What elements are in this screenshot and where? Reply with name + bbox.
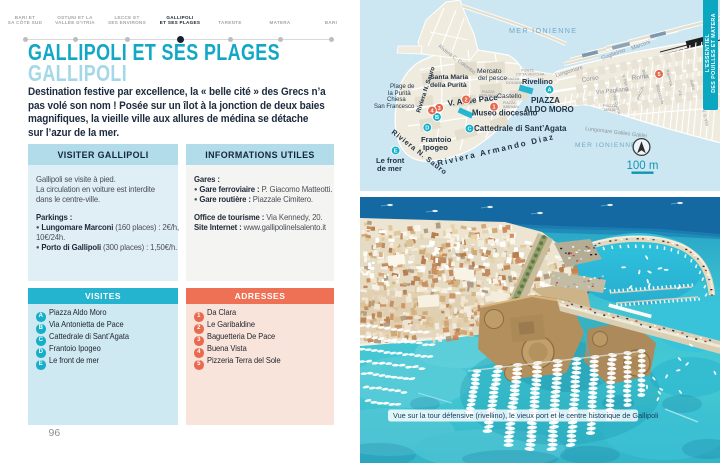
- svg-text:D: D: [425, 126, 429, 132]
- svg-text:REPUBBLICA: REPUBBLICA: [479, 94, 502, 98]
- svg-text:E: E: [393, 149, 397, 155]
- svg-text:Plage de: Plage de: [390, 83, 415, 90]
- svg-text:de mer: de mer: [377, 164, 402, 173]
- svg-text:del pesce: del pesce: [478, 75, 507, 82]
- svg-text:MER IONIENNE: MER IONIENNE: [575, 142, 637, 149]
- svg-text:la Purità: la Purità: [388, 90, 411, 97]
- svg-text:3: 3: [437, 106, 440, 112]
- svg-text:1: 1: [492, 105, 495, 111]
- svg-text:5: 5: [657, 72, 660, 78]
- svg-text:ALDO MORO: ALDO MORO: [524, 105, 574, 114]
- svg-text:C: C: [467, 127, 471, 133]
- svg-text:2: 2: [464, 97, 467, 103]
- svg-text:A: A: [547, 88, 551, 94]
- svg-text:B: B: [434, 115, 438, 121]
- svg-text:Rivellino: Rivellino: [522, 77, 553, 86]
- svg-text:IMBRIANI: IMBRIANI: [503, 105, 519, 109]
- svg-text:DOGANA: DOGANA: [506, 81, 523, 85]
- svg-text:Santa Maria: Santa Maria: [430, 74, 468, 81]
- svg-text:CITTA VECCHIA: CITTA VECCHIA: [516, 73, 545, 77]
- svg-text:100 m: 100 m: [626, 160, 658, 172]
- svg-text:Ipogeo: Ipogeo: [423, 143, 448, 152]
- svg-text:Vue sur la tour défensive (riv: Vue sur la tour défensive (rivellino), l…: [393, 411, 659, 420]
- svg-text:MER IONIENNE: MER IONIENNE: [509, 26, 577, 35]
- svg-text:San Francesco: San Francesco: [374, 104, 415, 110]
- svg-text:della Purità: della Purità: [430, 82, 467, 89]
- svg-text:PIAZZA: PIAZZA: [531, 96, 560, 105]
- svg-text:MALIA: MALIA: [604, 108, 616, 112]
- svg-text:Chiesa: Chiesa: [387, 97, 406, 103]
- svg-text:Mercato: Mercato: [477, 68, 502, 75]
